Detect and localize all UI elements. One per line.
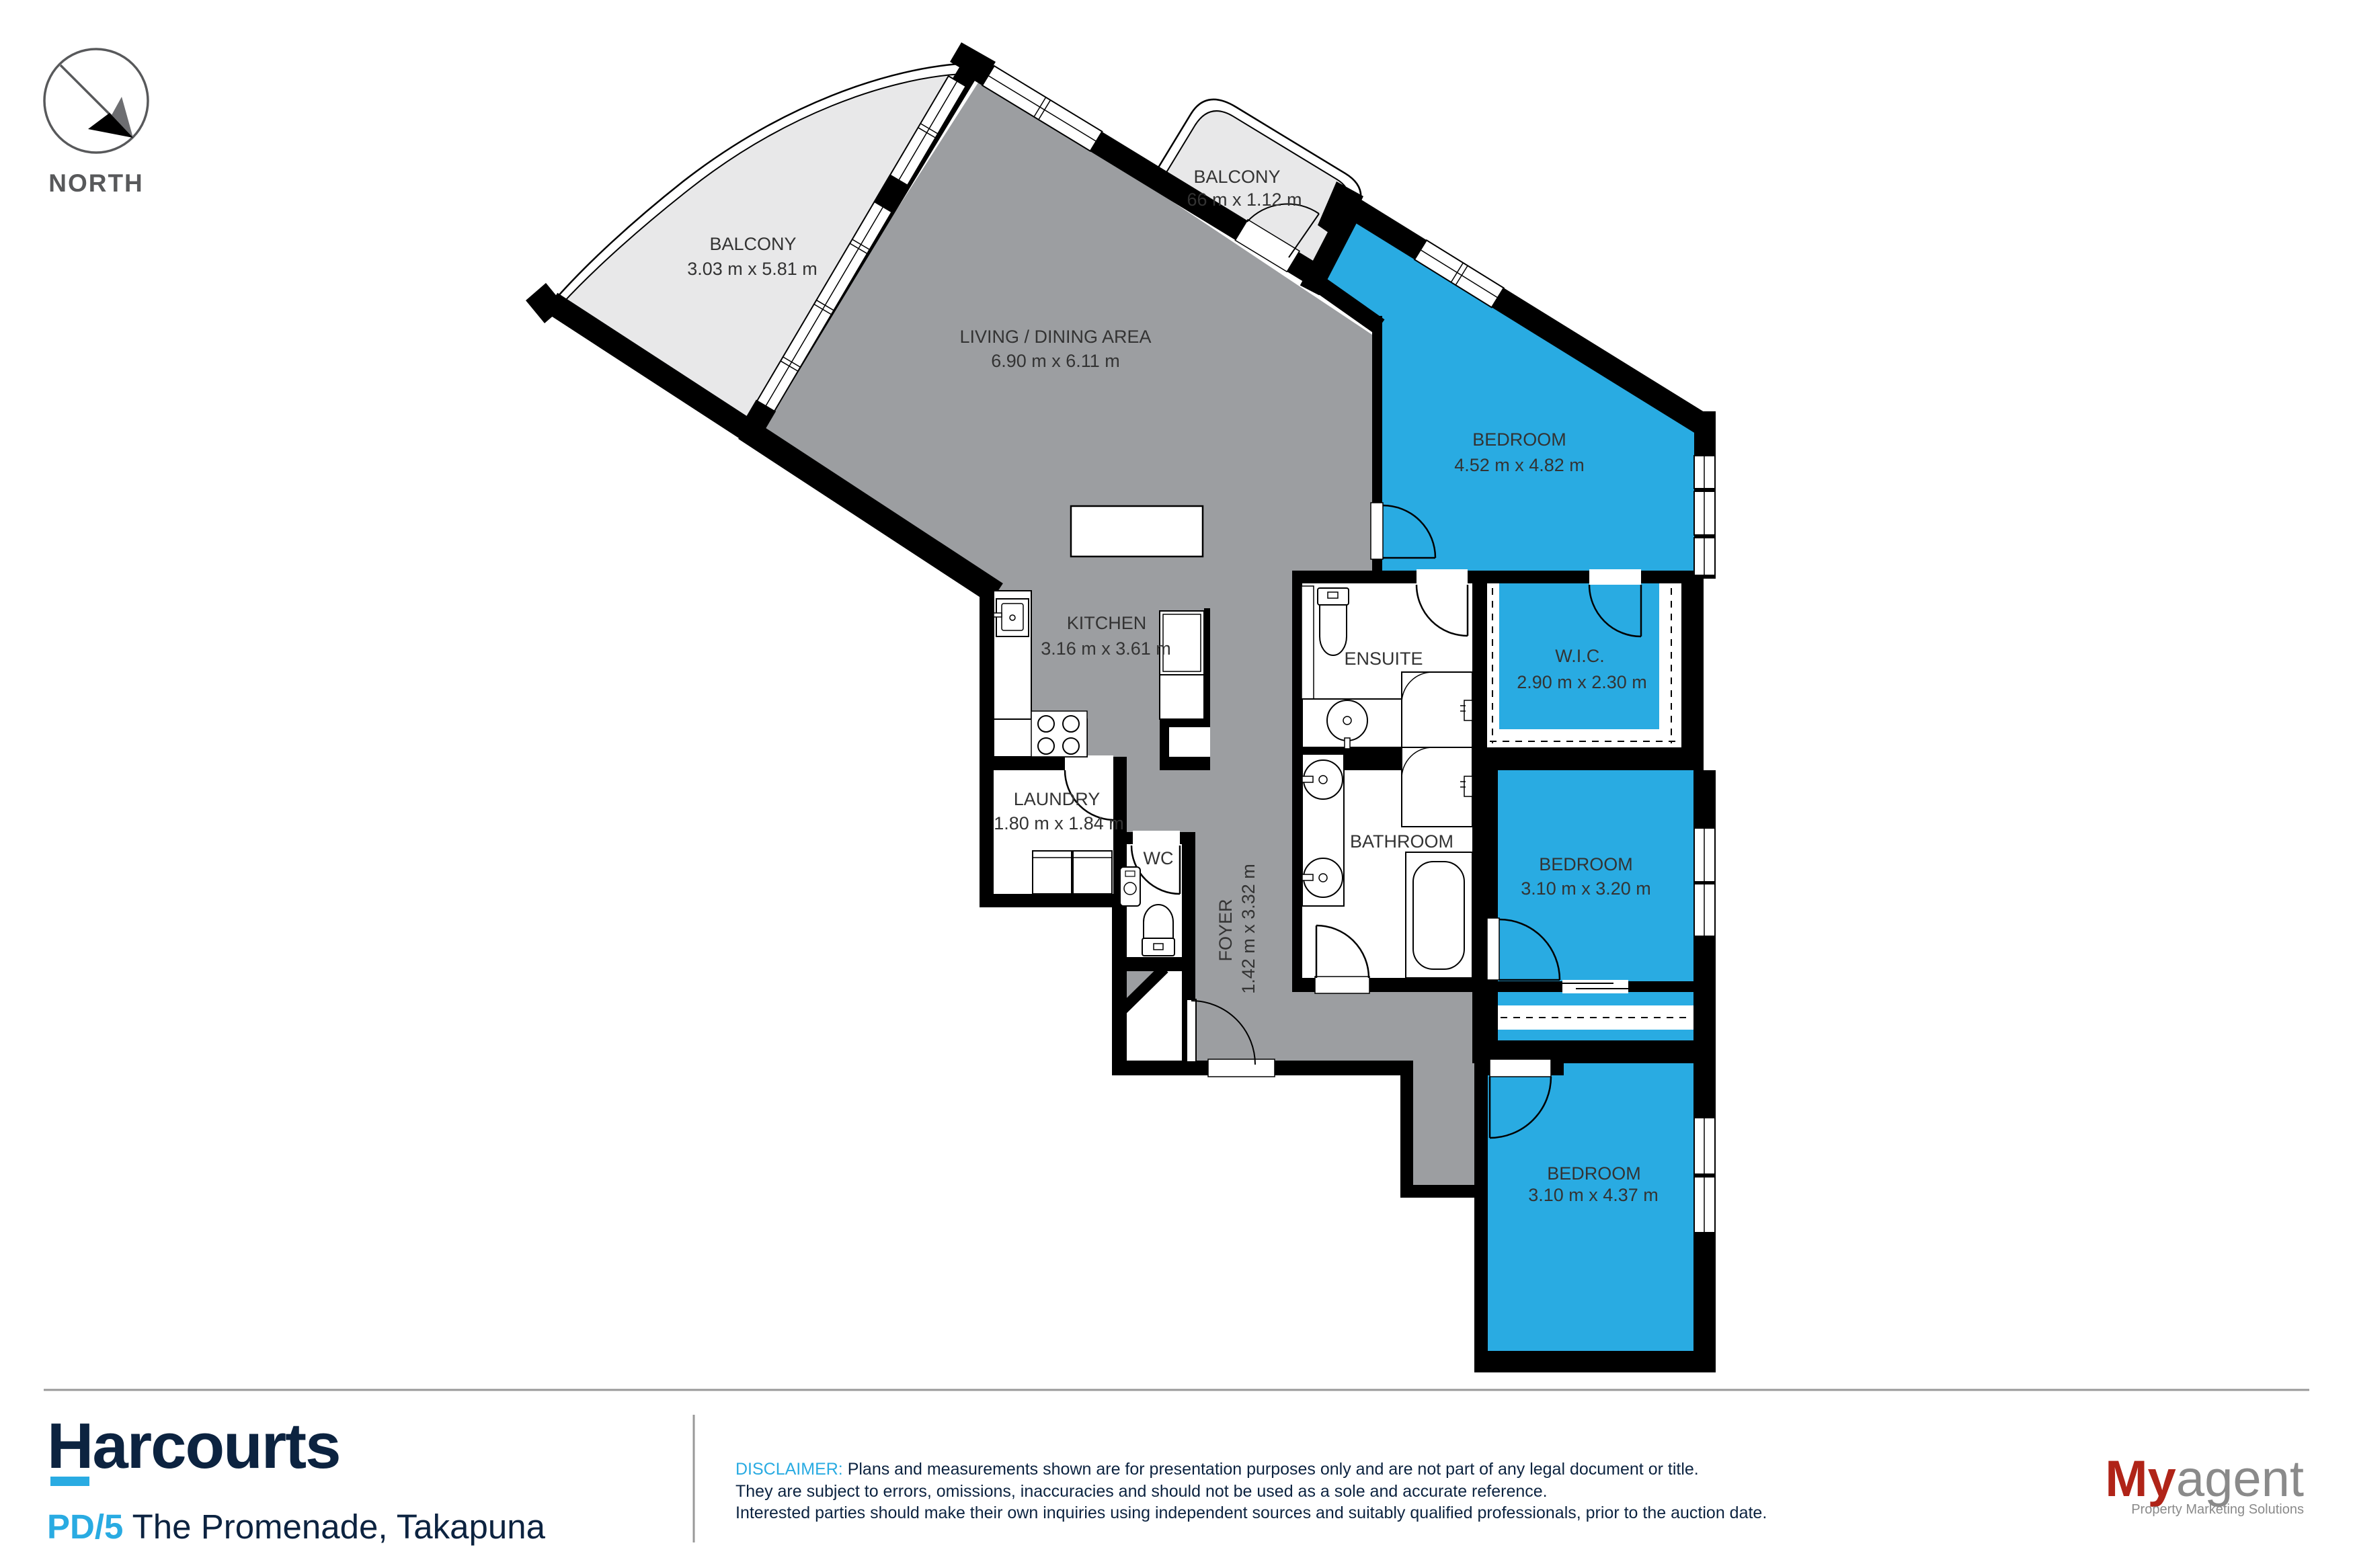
svg-text:Harcourts: Harcourts	[47, 1410, 340, 1482]
svg-text:3.16 m x 3.61 m: 3.16 m x 3.61 m	[1041, 638, 1171, 659]
svg-text:DISCLAIMER: Plans and measurem: DISCLAIMER: Plans and measurements shown…	[735, 1460, 1699, 1479]
svg-text:3.10 m x 3.20 m: 3.10 m x 3.20 m	[1521, 878, 1651, 899]
svg-text:BATHROOM: BATHROOM	[1350, 831, 1453, 852]
svg-text:LIVING / DINING AREA: LIVING / DINING AREA	[959, 327, 1151, 347]
svg-text:KITCHEN: KITCHEN	[1067, 613, 1147, 633]
svg-text:PD/5 The Promenade, Takapuna: PD/5 The Promenade, Takapuna	[47, 1508, 546, 1546]
svg-text:4.52 m x 4.82 m: 4.52 m x 4.82 m	[1454, 455, 1585, 475]
svg-text:BALCONY: BALCONY	[709, 234, 796, 254]
svg-text:NORTH: NORTH	[48, 169, 144, 197]
svg-text:3.03 m x 5.81 m: 3.03 m x 5.81 m	[687, 259, 817, 279]
svg-text:BEDROOM: BEDROOM	[1539, 854, 1633, 874]
svg-text:1.42 m x 3.32 m: 1.42 m x 3.32 m	[1238, 864, 1259, 994]
svg-text:WC: WC	[1144, 848, 1174, 868]
svg-text:3.10 m x 4.37 m: 3.10 m x 4.37 m	[1528, 1185, 1659, 1205]
svg-text:Myagent: Myagent	[2105, 1450, 2304, 1508]
svg-text:They are subject to errors, om: They are subject to errors, omissions, i…	[735, 1482, 1548, 1501]
svg-text:BEDROOM: BEDROOM	[1472, 429, 1566, 450]
svg-text:66 m x 1.12 m: 66 m x 1.12 m	[1187, 190, 1302, 210]
svg-text:W.I.C.: W.I.C.	[1555, 646, 1605, 666]
svg-text:ENSUITE: ENSUITE	[1344, 649, 1423, 669]
svg-text:BALCONY: BALCONY	[1193, 167, 1280, 187]
svg-text:1.80 m x 1.84 m: 1.80 m x 1.84 m	[994, 813, 1124, 833]
svg-text:LAUNDRY: LAUNDRY	[1014, 789, 1101, 809]
svg-text:BEDROOM: BEDROOM	[1547, 1163, 1641, 1184]
svg-text:Property Marketing Solutions: Property Marketing Solutions	[2131, 1502, 2304, 1517]
svg-text:6.90 m x 6.11 m: 6.90 m x 6.11 m	[991, 351, 1120, 371]
svg-text:FOYER: FOYER	[1215, 899, 1236, 961]
svg-text:2.90 m x 2.30 m: 2.90 m x 2.30 m	[1517, 672, 1647, 692]
svg-text:Interested parties should make: Interested parties should make their own…	[735, 1503, 1767, 1522]
